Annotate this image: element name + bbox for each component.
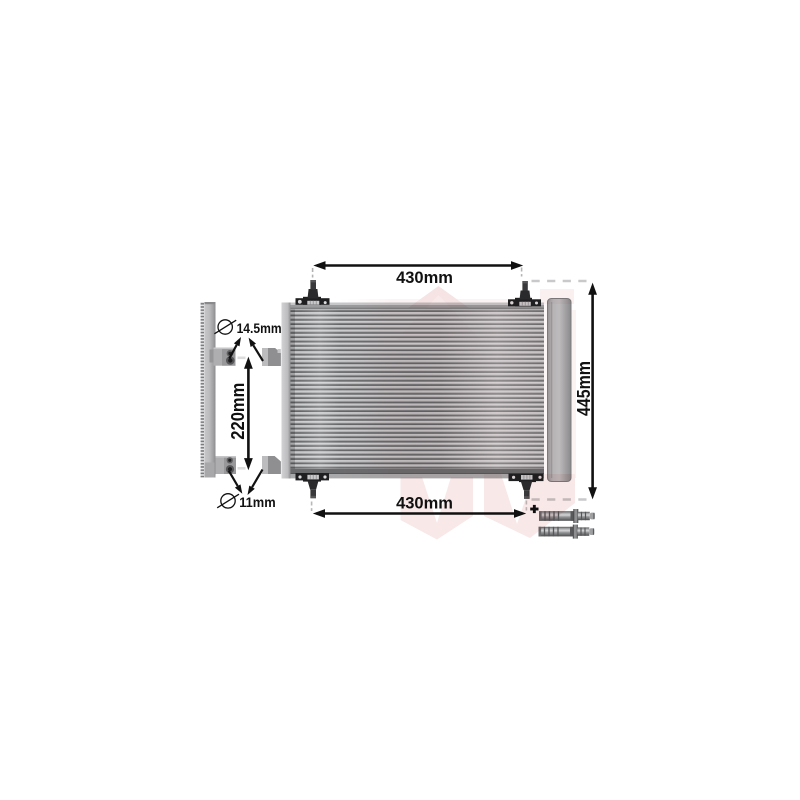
svg-text:220mm: 220mm (228, 383, 248, 440)
svg-text:11mm: 11mm (239, 495, 276, 510)
svg-text:430mm: 430mm (396, 269, 453, 287)
svg-text:445mm: 445mm (574, 361, 594, 416)
svg-text:14.5mm: 14.5mm (237, 321, 282, 336)
